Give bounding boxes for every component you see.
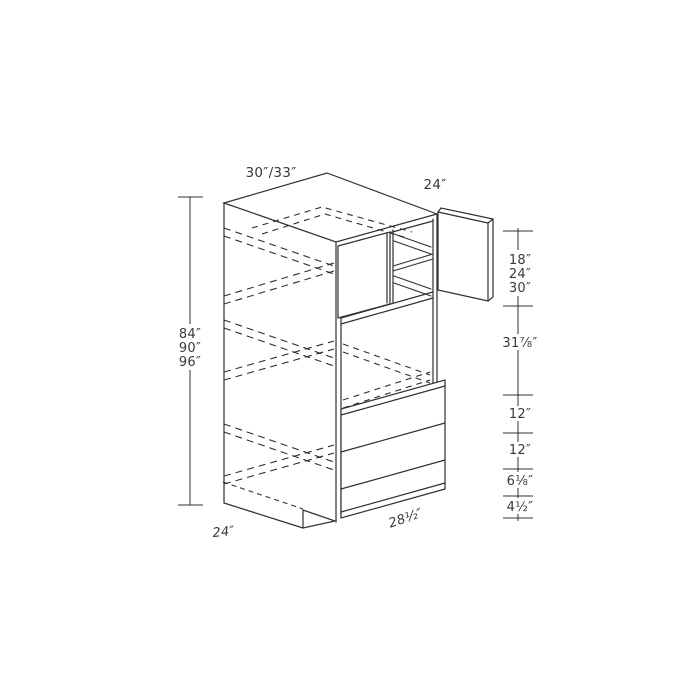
upper-left-door [338, 232, 390, 318]
height-label-90: 90″ [179, 341, 201, 356]
drawer-bank [341, 380, 445, 518]
open-door-panel [438, 212, 488, 301]
compartment-shelf [393, 254, 433, 271]
upper-right-door-open [438, 208, 493, 301]
height-label-84: 84″ [179, 327, 201, 342]
toe-kick-notch [303, 510, 335, 528]
opening-width-label: 28½″ [387, 506, 425, 532]
drawer1-label: 12″ [509, 407, 531, 422]
tall-oven-cabinet-isometric-drawing: 30″/33″ 24″ 84″ 90″ 96″ 18″ 24″ 30″ 31⅞″… [0, 0, 700, 700]
drawer3-label: 6⅛″ [507, 474, 534, 489]
top-depth-label: 24″ [423, 177, 446, 193]
upper-opening-label-24: 24″ [509, 267, 531, 282]
upper-opening-label-30: 30″ [509, 281, 531, 296]
base-height-label: 4½″ [507, 500, 534, 515]
hidden-lines-left-panel [224, 228, 334, 484]
oven-opening-label: 31⅞″ [502, 336, 537, 351]
open-compartment [393, 234, 433, 296]
top-width-label: 30″/33″ [245, 165, 296, 181]
cabinet-top-face [224, 173, 437, 242]
upper-left-door-panel [338, 232, 390, 318]
left-side-panel-edge [224, 203, 303, 528]
height-label-96: 96″ [179, 355, 201, 370]
front-right-stile [433, 214, 437, 384]
cabinet-drawing-page: 30″/33″ 24″ 84″ 90″ 96″ 18″ 24″ 30″ 31⅞″… [0, 0, 700, 700]
drawer2-label: 12″ [509, 443, 531, 458]
upper-opening-label-18: 18″ [509, 253, 531, 268]
hidden-line-toe-kick [223, 482, 303, 509]
bottom-depth-label: 24″ [212, 524, 236, 541]
